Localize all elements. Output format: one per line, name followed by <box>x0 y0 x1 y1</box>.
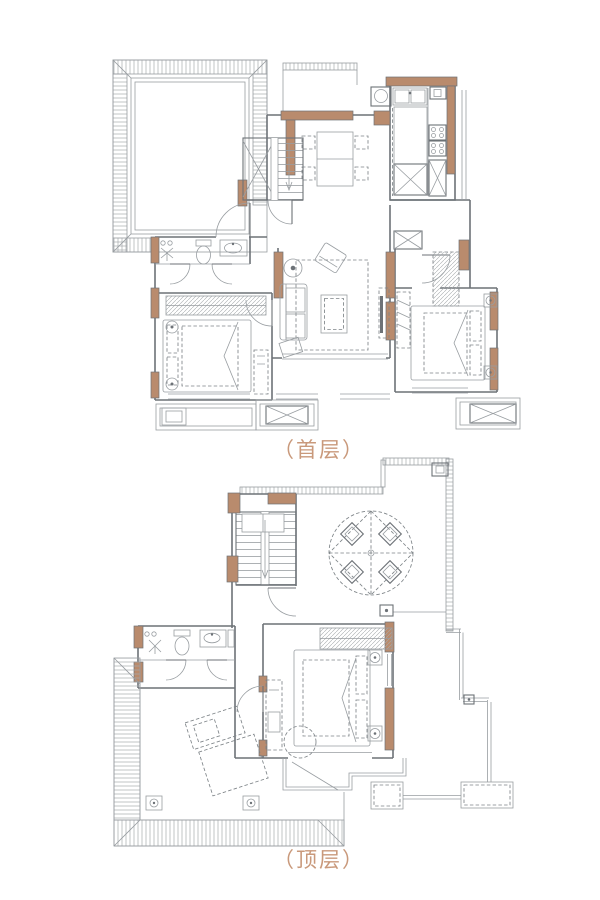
floor2-staircase <box>236 512 296 585</box>
floorplan-canvas: （首层） <box>0 0 600 900</box>
floor2-label: （顶层） <box>273 849 365 872</box>
closet-icon <box>433 252 459 306</box>
floor1-label: （首层） <box>273 439 365 462</box>
floorplan-page: （首层） <box>0 0 600 900</box>
wardrobe-icon <box>166 296 266 315</box>
wardrobe-icon <box>320 628 392 649</box>
